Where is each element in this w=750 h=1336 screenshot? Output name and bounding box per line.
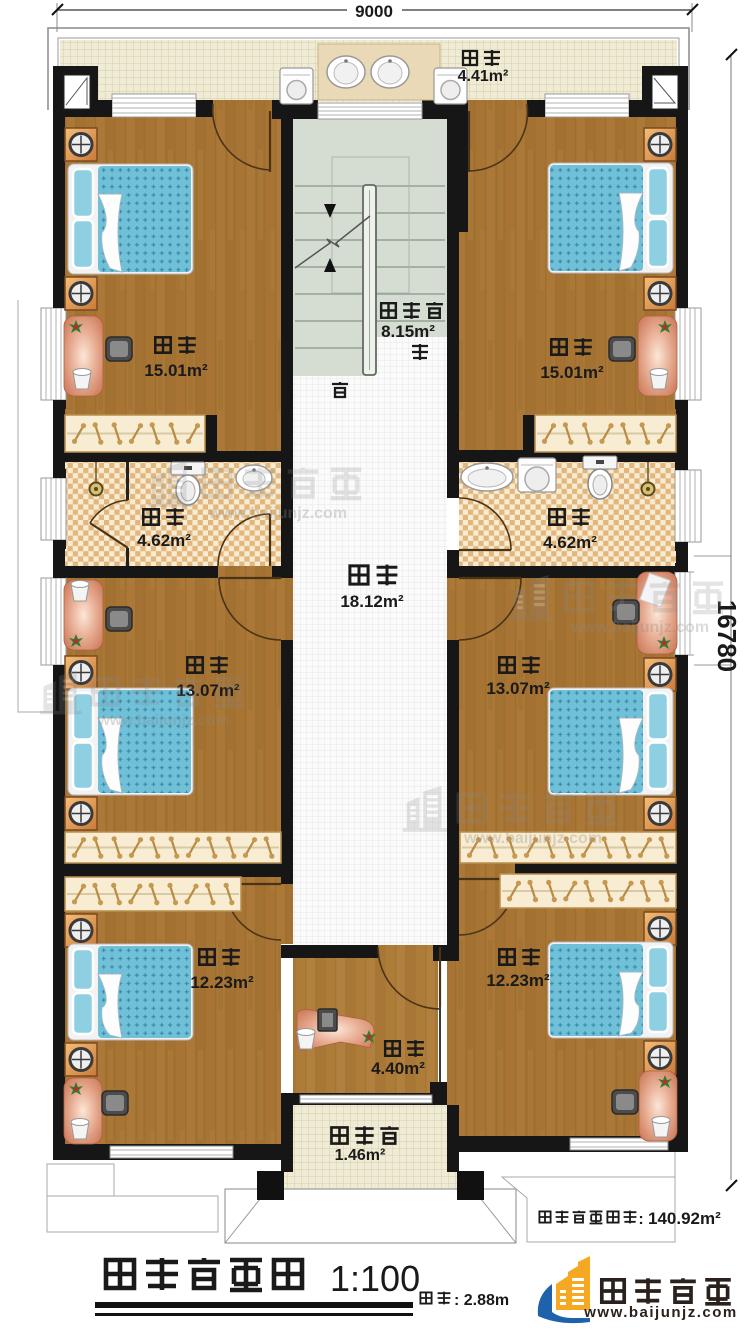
svg-text:1:100: 1:100	[330, 1258, 420, 1299]
svg-text::: :	[638, 1211, 643, 1228]
svg-text:4.41m²: 4.41m²	[458, 68, 509, 85]
svg-text:www.baijunjz.com: www.baijunjz.com	[583, 1304, 737, 1321]
svg-text:www.baijunjz.com: www.baijunjz.com	[208, 505, 347, 522]
svg-text:: 2.88m: : 2.88m	[454, 1292, 509, 1309]
svg-text:4.62m²: 4.62m²	[137, 531, 191, 550]
svg-text:www.baijunjz.com: www.baijunjz.com	[463, 830, 602, 847]
svg-text:4.62m²: 4.62m²	[543, 533, 597, 552]
svg-text:9000: 9000	[355, 2, 393, 21]
svg-text:15.01m²: 15.01m²	[540, 363, 604, 382]
svg-text:18.12m²: 18.12m²	[340, 592, 404, 611]
svg-text:140.92m²: 140.92m²	[648, 1209, 721, 1228]
svg-text:www.baijunjz.com: www.baijunjz.com	[97, 712, 229, 729]
svg-text:8.15m²: 8.15m²	[381, 322, 435, 341]
svg-text:15.01m²: 15.01m²	[144, 361, 208, 380]
svg-text:13.07m²: 13.07m²	[486, 679, 550, 698]
svg-text:www.baijunjz.com: www.baijunjz.com	[570, 619, 709, 636]
svg-text:12.23m²: 12.23m²	[190, 973, 254, 992]
svg-text:12.23m²: 12.23m²	[486, 971, 550, 990]
svg-text:4.40m²: 4.40m²	[371, 1059, 425, 1078]
svg-text:1.46m²: 1.46m²	[335, 1147, 386, 1164]
